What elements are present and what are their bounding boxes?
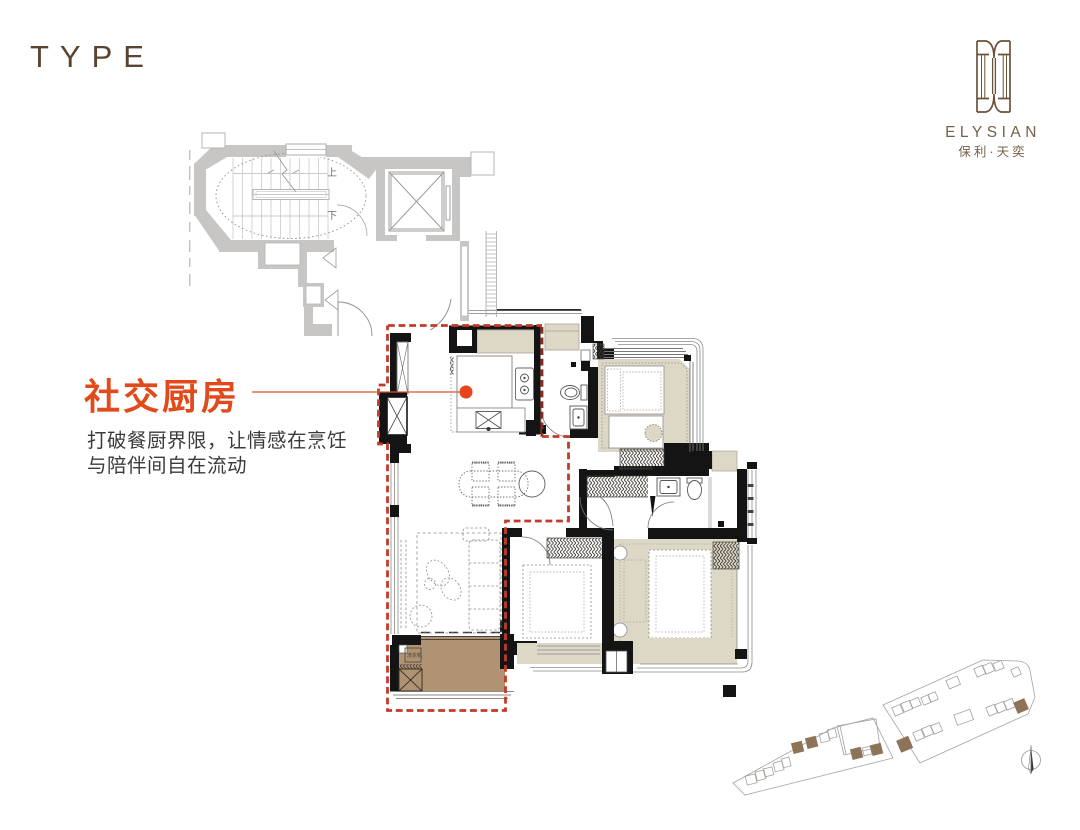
svg-text:打破餐厨界限，让情感在烹饪: 打破餐厨界限，让情感在烹饪	[87, 430, 347, 452]
svg-text:洗衣机: 洗衣机	[407, 652, 422, 659]
svg-text:与陪伴间自在流动: 与陪伴间自在流动	[87, 455, 247, 477]
svg-text:保利·天奕: 保利·天奕	[958, 144, 1027, 159]
svg-text:上: 上	[327, 167, 337, 179]
svg-text:下: 下	[327, 211, 337, 222]
svg-text:社交厨房: 社交厨房	[84, 376, 240, 417]
svg-text:TYPE: TYPE	[30, 39, 155, 74]
svg-text:ELYSIAN: ELYSIAN	[945, 124, 1041, 141]
